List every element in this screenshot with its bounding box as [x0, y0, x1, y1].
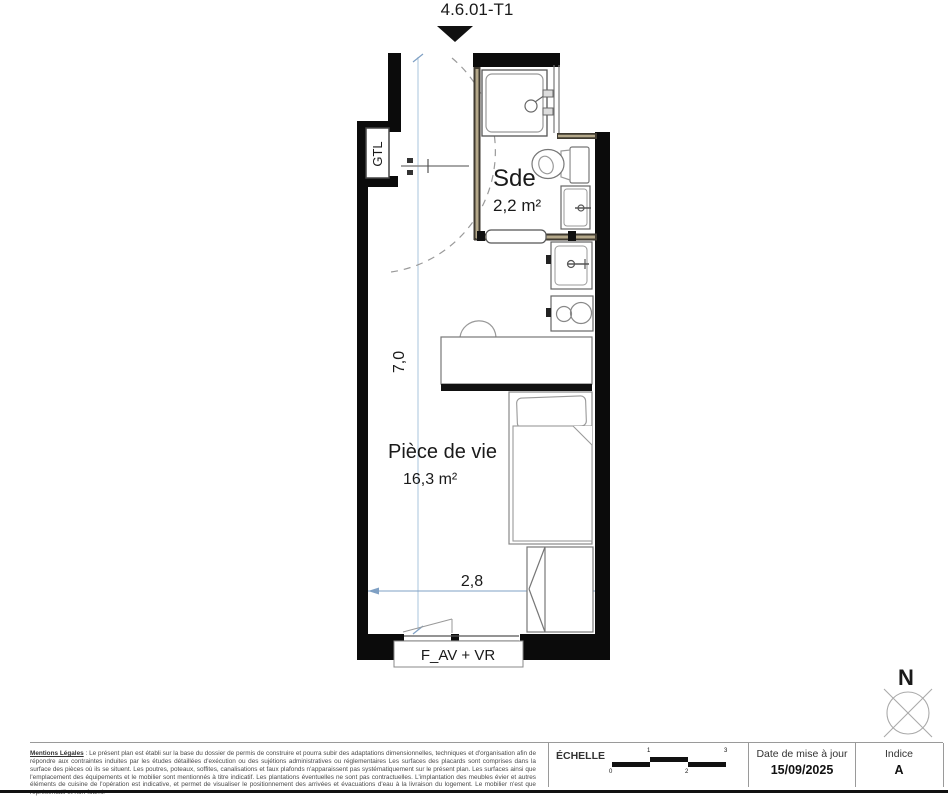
north-compass-icon: N	[884, 665, 932, 737]
scale-tick: 2	[685, 769, 688, 775]
footer-top-rule	[30, 742, 943, 743]
index-section: Indice A	[858, 748, 940, 777]
entrance-arrow-icon	[437, 26, 473, 42]
scale-tick: 3	[724, 748, 727, 754]
dimension-vertical: 7,0	[391, 54, 423, 634]
dimension-height-label: 7,0	[391, 351, 408, 373]
blanket	[513, 426, 592, 541]
update-date-value: 15/09/2025	[752, 763, 852, 777]
unit-title: 4.6.01-T1	[441, 0, 514, 19]
footer-divider	[548, 743, 549, 787]
room-sde-name: Sde	[493, 165, 536, 192]
gtl-cabinet: GTL	[366, 128, 389, 178]
vanity-basin	[561, 186, 591, 229]
room-sde-area: 2,2 m²	[493, 196, 542, 215]
update-date-label: Date de mise à jour	[752, 748, 852, 760]
shower	[482, 70, 553, 136]
index-value: A	[858, 763, 940, 777]
kitchen-sink	[546, 242, 592, 289]
entrance-door	[401, 158, 469, 175]
footer-bottom-rule	[0, 790, 948, 793]
room-living-area: 16,3 m²	[403, 471, 458, 488]
footer-divider	[855, 743, 856, 787]
window: F_AV + VR	[394, 619, 523, 667]
wardrobe	[527, 547, 593, 632]
floor-plan: 4.6.01-T1 7,0 2,8	[0, 0, 948, 800]
dimension-width-label: 2,8	[461, 573, 483, 590]
scale-tick: 0	[609, 769, 612, 775]
scale-segment	[612, 762, 650, 767]
room-living-name: Pièce de vie	[388, 441, 497, 463]
toilet	[532, 147, 589, 183]
index-label: Indice	[858, 748, 940, 760]
scale-tick: 1	[647, 748, 650, 754]
gtl-label: GTL	[370, 141, 385, 166]
footer-divider	[748, 743, 749, 787]
update-date-section: Date de mise à jour 15/09/2025	[752, 748, 852, 777]
bed	[509, 392, 592, 544]
cooktop	[546, 296, 593, 331]
scale-segment	[688, 762, 726, 767]
north-label: N	[898, 665, 914, 690]
scale-segment	[650, 757, 688, 762]
pillow	[516, 396, 586, 428]
footer-divider	[943, 743, 944, 787]
window-label: F_AV + VR	[421, 647, 496, 664]
chair	[460, 321, 496, 337]
scale-label: ÉCHELLE	[556, 750, 605, 762]
legal-title: Mentions Légales	[30, 750, 84, 757]
